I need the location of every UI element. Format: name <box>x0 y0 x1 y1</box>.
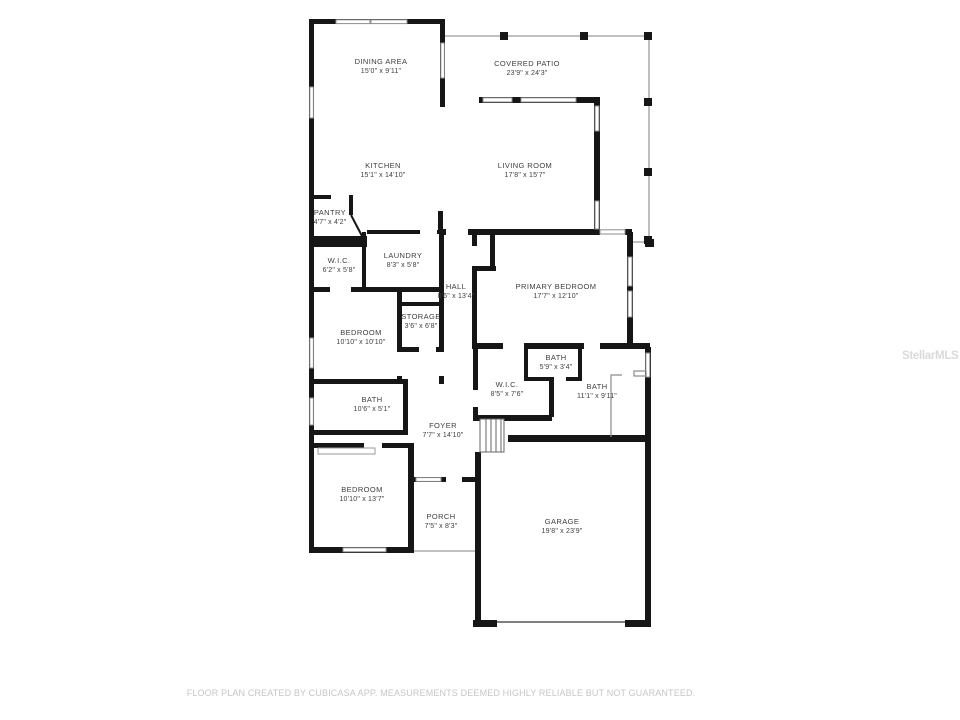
stairs <box>480 419 504 452</box>
shower-enclosure <box>611 371 646 437</box>
patio-outline <box>413 36 649 551</box>
walls <box>309 19 654 627</box>
stellar-mls-watermark: StellarMLS <box>902 350 958 362</box>
footer-disclaimer: FLOOR PLAN CREATED BY CUBICASA APP. MEAS… <box>187 688 696 698</box>
pantry-door <box>351 215 362 236</box>
floor-plan-page: DINING AREA15'0" x 9'11"COVERED PATIO23'… <box>0 0 960 720</box>
patio-posts <box>500 32 652 244</box>
floor-plan-drawing <box>0 0 960 720</box>
